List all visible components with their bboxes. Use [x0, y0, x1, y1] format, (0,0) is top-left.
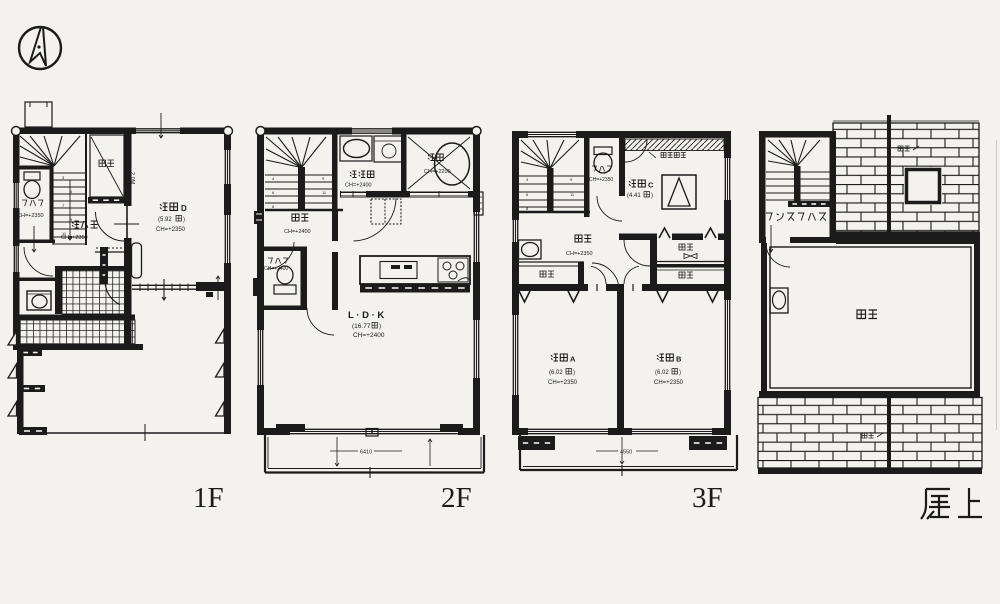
svg-text:CH=+2200: CH=+2200: [424, 169, 451, 175]
svg-text:CH=+2350: CH=+2350: [654, 380, 684, 386]
svg-text:CH=+2350: CH=+2350: [548, 380, 578, 386]
svg-text:3F: 3F: [692, 482, 723, 514]
svg-text:2F: 2F: [441, 482, 472, 514]
svg-text:(5.92: (5.92: [158, 217, 172, 223]
svg-text:C: C: [648, 181, 654, 190]
svg-text:6410: 6410: [360, 450, 372, 456]
svg-text:(6.02: (6.02: [549, 370, 563, 376]
svg-text:): ): [573, 370, 575, 376]
svg-text:CH=+2350: CH=+2350: [589, 177, 613, 183]
svg-text:CH=+2400: CH=+2400: [264, 266, 288, 272]
svg-text:2.0M: 2.0M: [129, 172, 135, 185]
svg-text:CH=+2350: CH=+2350: [566, 251, 593, 257]
svg-text:(4.41: (4.41: [627, 193, 641, 199]
svg-text:(16.77: (16.77: [352, 323, 371, 330]
svg-text:D: D: [181, 204, 187, 213]
svg-text:A: A: [570, 355, 576, 364]
svg-text:): ): [651, 193, 653, 199]
svg-text:): ): [183, 217, 185, 223]
svg-text:): ): [379, 323, 381, 330]
svg-text:CH=+2400: CH=+2400: [345, 183, 372, 189]
svg-text:L · D · K: L · D · K: [348, 310, 384, 321]
svg-text:CH=+2350: CH=+2350: [156, 227, 186, 233]
svg-text:CH=+2350: CH=+2350: [17, 213, 44, 219]
svg-text:): ): [679, 370, 681, 376]
svg-text:1F: 1F: [193, 482, 224, 514]
svg-text:B: B: [676, 355, 682, 364]
svg-text:CH=+2400: CH=+2400: [284, 229, 311, 235]
svg-text:(6.02: (6.02: [655, 370, 669, 376]
svg-text:CH=+2400: CH=+2400: [353, 332, 385, 339]
